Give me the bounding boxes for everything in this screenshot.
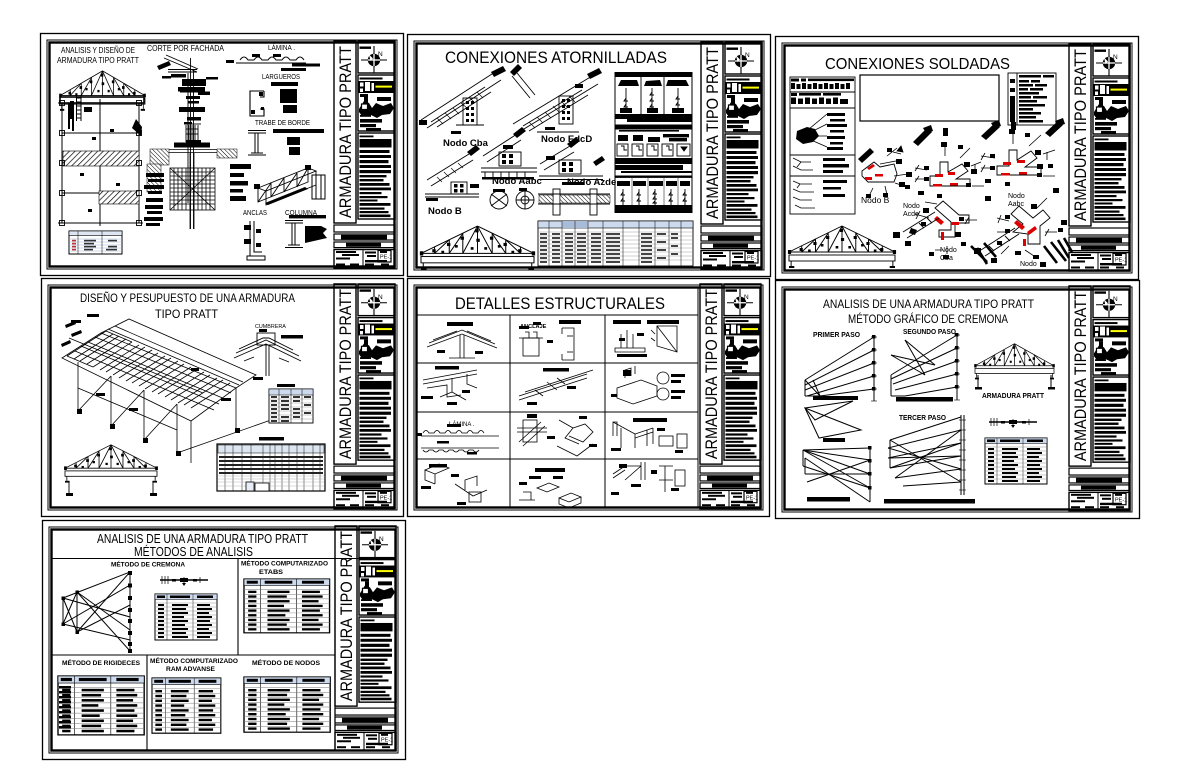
svg-text:PRIMER PASO: PRIMER PASO: [813, 330, 860, 339]
svg-text:MÉTODO DE RIGIDECES: MÉTODO DE RIGIDECES: [62, 658, 141, 667]
svg-text:MÉTODO COMPUTARIZADO: MÉTODO COMPUTARIZADO: [241, 559, 328, 568]
svg-text:CONEXIONES ATORNILLADAS: CONEXIONES ATORNILLADAS: [445, 49, 667, 67]
svg-text:ARMADURA PRATT: ARMADURA PRATT: [982, 391, 1044, 400]
svg-text:RAM ADVANSE: RAM ADVANSE: [166, 666, 216, 673]
svg-text:CORTE POR FACHADA: CORTE POR FACHADA: [147, 43, 224, 53]
svg-text:ANALISIS Y DISEÑO DE: ANALISIS Y DISEÑO DE: [61, 46, 135, 55]
svg-text:MÉTODO DE CREMONA: MÉTODO DE CREMONA: [111, 560, 185, 569]
svg-text:Nodo B: Nodo B: [428, 206, 462, 217]
svg-text:Nodo EdcD: Nodo EdcD: [541, 134, 592, 145]
svg-text:MÉTODOS DE ANALISIS: MÉTODOS DE ANALISIS: [134, 544, 253, 559]
svg-text:ANCLAS: ANCLAS: [243, 208, 267, 217]
svg-text:Nodo: Nodo: [903, 203, 920, 210]
svg-text:ARMADURA TIPO PRATT: ARMADURA TIPO PRATT: [57, 56, 139, 65]
svg-text:SEGUNDO PASO: SEGUNDO PASO: [903, 327, 956, 336]
svg-text:LARGUEROS: LARGUEROS: [262, 72, 300, 81]
svg-text:LÁMINA .: LÁMINA .: [268, 43, 295, 52]
svg-text:Nodo: Nodo: [1020, 261, 1037, 268]
svg-text:DETALLES ESTRUCTURALES: DETALLES ESTRUCTURALES: [455, 295, 665, 313]
svg-text:DISEÑO Y PESUPUESTO DE UNA ARM: DISEÑO Y PESUPUESTO DE UNA ARMADURA: [80, 292, 295, 305]
svg-text:Aabc: Aabc: [1008, 201, 1024, 208]
svg-text:MÉTODO GRÁFICO DE CREMONA: MÉTODO GRÁFICO DE CREMONA: [848, 313, 1008, 326]
svg-text:Nodo: Nodo: [1008, 193, 1025, 200]
svg-text:Nodo Cba: Nodo Cba: [443, 138, 489, 149]
svg-text:ETABS: ETABS: [259, 569, 284, 576]
svg-text:Nodo: Nodo: [940, 247, 957, 254]
svg-text:Cba: Cba: [940, 255, 953, 262]
svg-text:MÉTODO COMPUTARIZADO: MÉTODO COMPUTARIZADO: [150, 656, 238, 665]
svg-text:Nodo B: Nodo B: [861, 195, 890, 205]
svg-text:MÉTODO DE NODOS: MÉTODO DE NODOS: [252, 658, 321, 667]
svg-text:TRABE DE BORDE: TRABE DE BORDE: [255, 118, 310, 127]
svg-text:TERCER PASO: TERCER PASO: [899, 413, 946, 422]
svg-text:CONEXIONES SOLDADAS: CONEXIONES SOLDADAS: [825, 56, 1010, 73]
svg-text:ANALISIS DE UNA ARMADURA TIPO: ANALISIS DE UNA ARMADURA TIPO PRATT: [823, 299, 1034, 311]
svg-text:TIPO PRATT: TIPO PRATT: [155, 309, 218, 321]
